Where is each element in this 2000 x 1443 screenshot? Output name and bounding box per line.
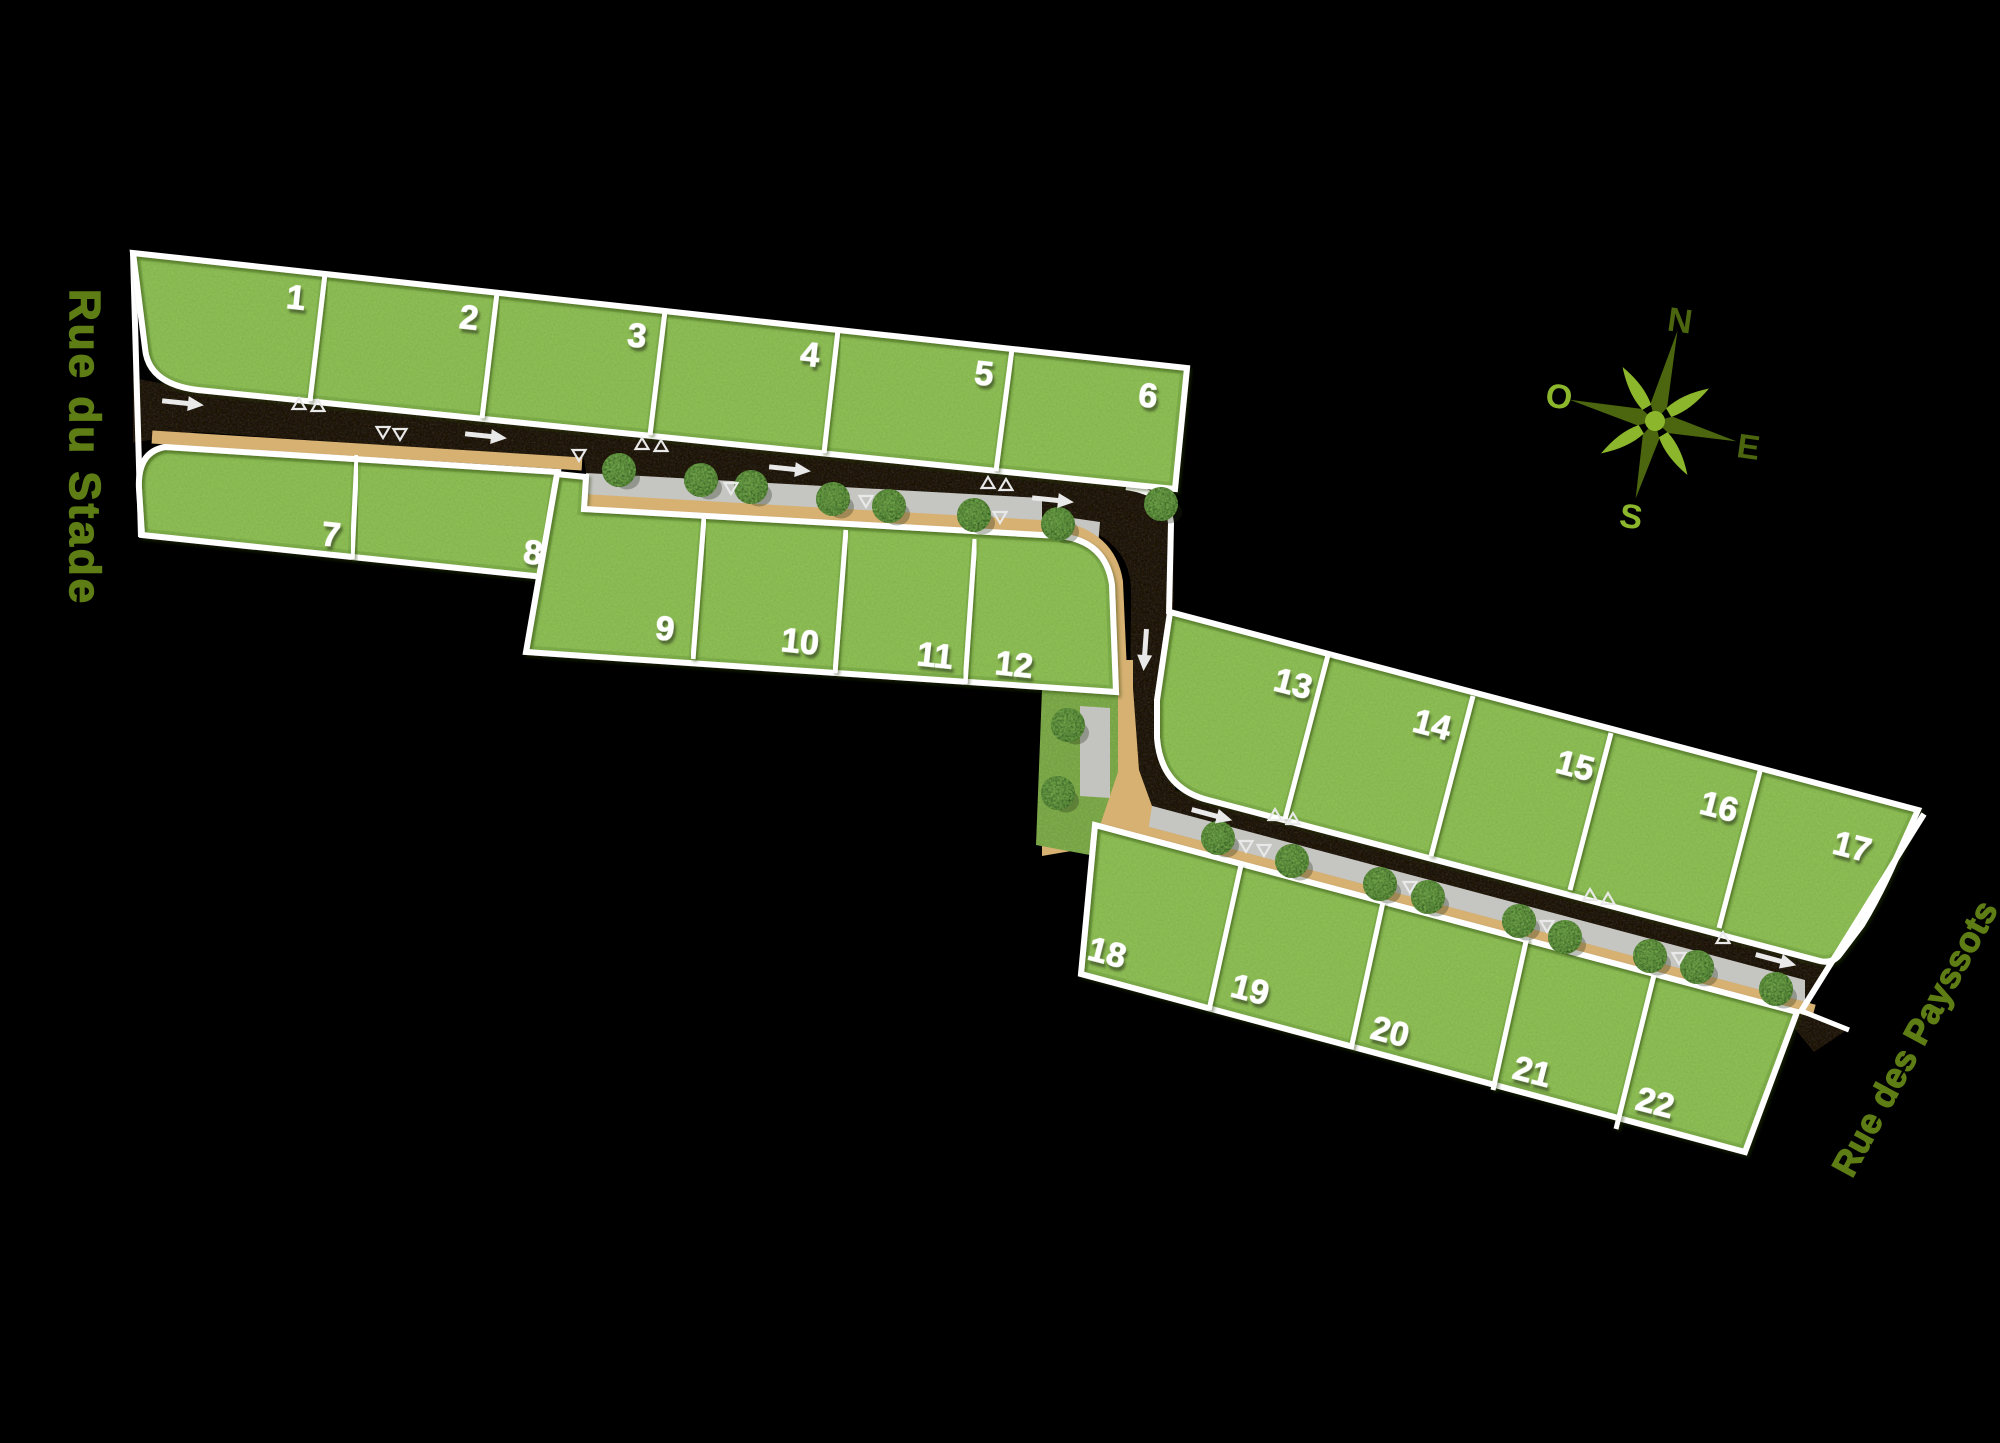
svg-text:6: 6 [1137,376,1160,416]
svg-text:1: 1 [285,278,308,318]
svg-text:9: 9 [654,609,677,649]
svg-text:N: N [1665,301,1695,342]
svg-text:2: 2 [458,298,481,338]
svg-text:10: 10 [779,621,821,663]
svg-text:4: 4 [799,335,822,375]
svg-text:Rue du Stade: Rue du Stade [60,289,109,606]
svg-text:O: O [1543,376,1574,417]
svg-text:3: 3 [626,316,649,356]
svg-text:11: 11 [915,635,955,677]
svg-text:7: 7 [320,515,343,555]
svg-text:12: 12 [993,644,1035,686]
svg-text:5: 5 [973,354,996,394]
